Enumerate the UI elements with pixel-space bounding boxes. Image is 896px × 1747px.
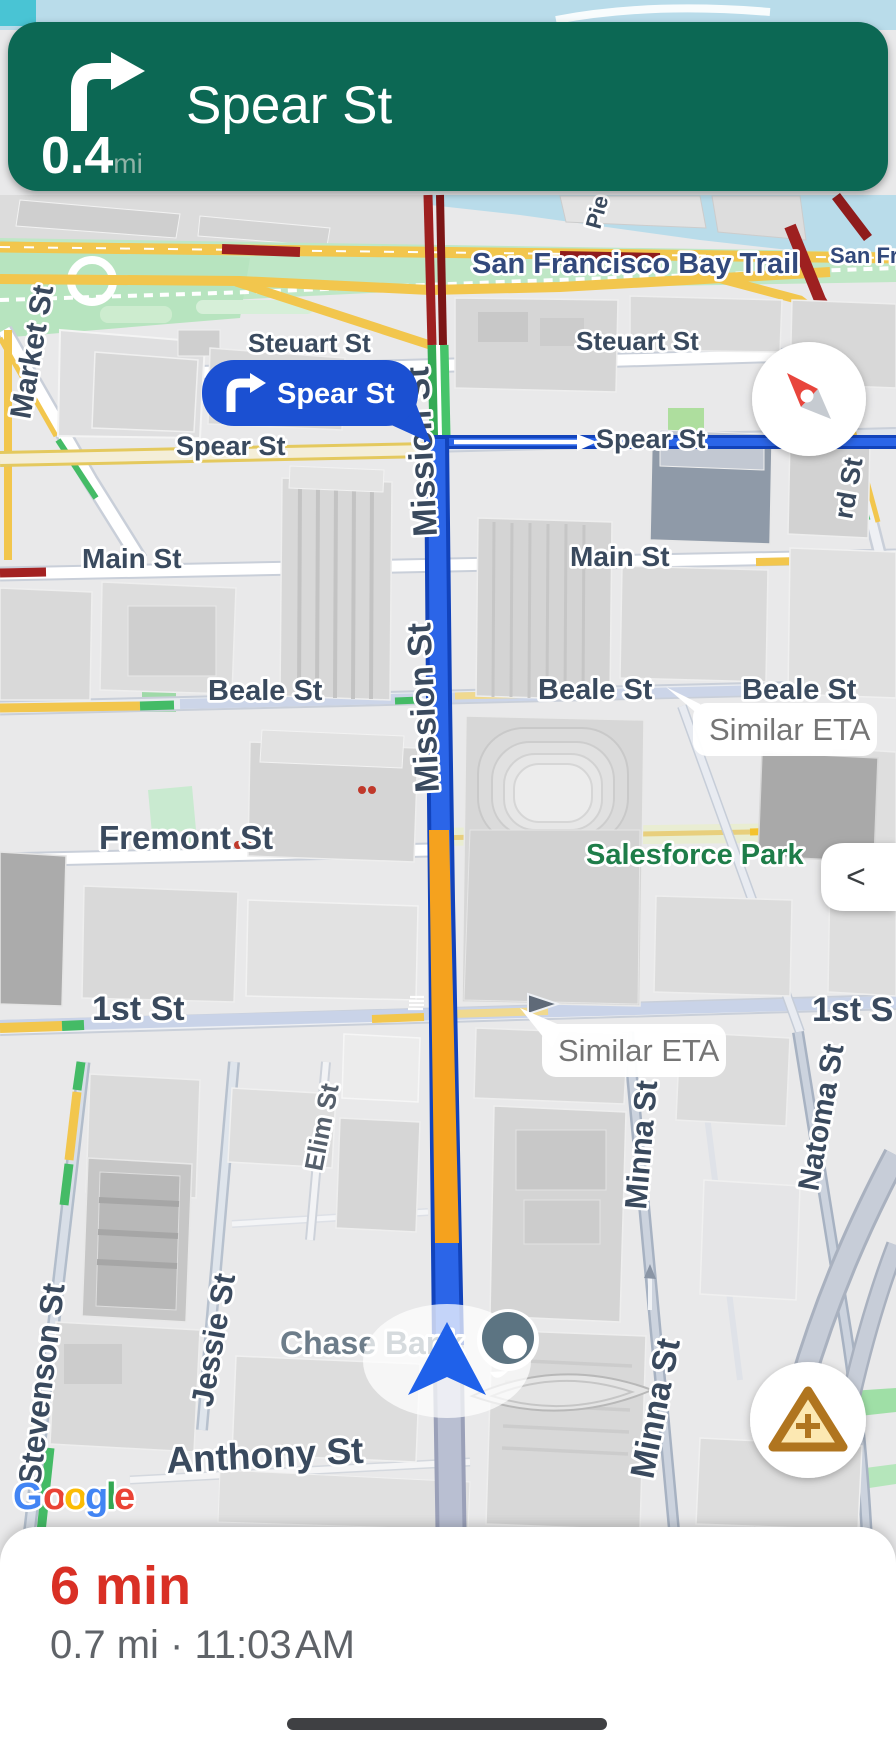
- svg-text:o: o: [64, 1476, 87, 1518]
- svg-text:g: g: [85, 1476, 108, 1518]
- svg-text:<: <: [846, 858, 866, 896]
- svg-text:San Francisco Bay Trail: San Francisco Bay Trail: [472, 248, 799, 280]
- svg-text:Fremont St: Fremont St: [99, 819, 273, 856]
- svg-text:Spear St: Spear St: [176, 431, 286, 461]
- svg-text:Beale St: Beale St: [208, 675, 323, 707]
- svg-text:Similar ETA: Similar ETA: [709, 712, 871, 747]
- svg-text:Salesforce Park: Salesforce Park: [586, 839, 805, 871]
- svg-text:Steuart St: Steuart St: [576, 326, 699, 356]
- svg-text:1st St: 1st St: [92, 990, 185, 1028]
- svg-text:G: G: [13, 1476, 43, 1518]
- svg-text:Main St: Main St: [570, 541, 670, 572]
- svg-text:San Fran: San Fran: [830, 243, 896, 268]
- svg-text:Beale St: Beale St: [742, 674, 857, 706]
- svg-text:Main St: Main St: [82, 543, 182, 574]
- svg-text:Spear St: Spear St: [277, 378, 395, 410]
- svg-text:Similar ETA: Similar ETA: [558, 1033, 720, 1068]
- svg-text:Spear St: Spear St: [596, 424, 706, 454]
- svg-text:1st S: 1st S: [812, 991, 893, 1029]
- svg-text:Beale St: Beale St: [538, 674, 653, 706]
- svg-text:Steuart St: Steuart St: [248, 328, 371, 358]
- svg-text:o: o: [43, 1476, 66, 1518]
- svg-text:e: e: [114, 1476, 135, 1518]
